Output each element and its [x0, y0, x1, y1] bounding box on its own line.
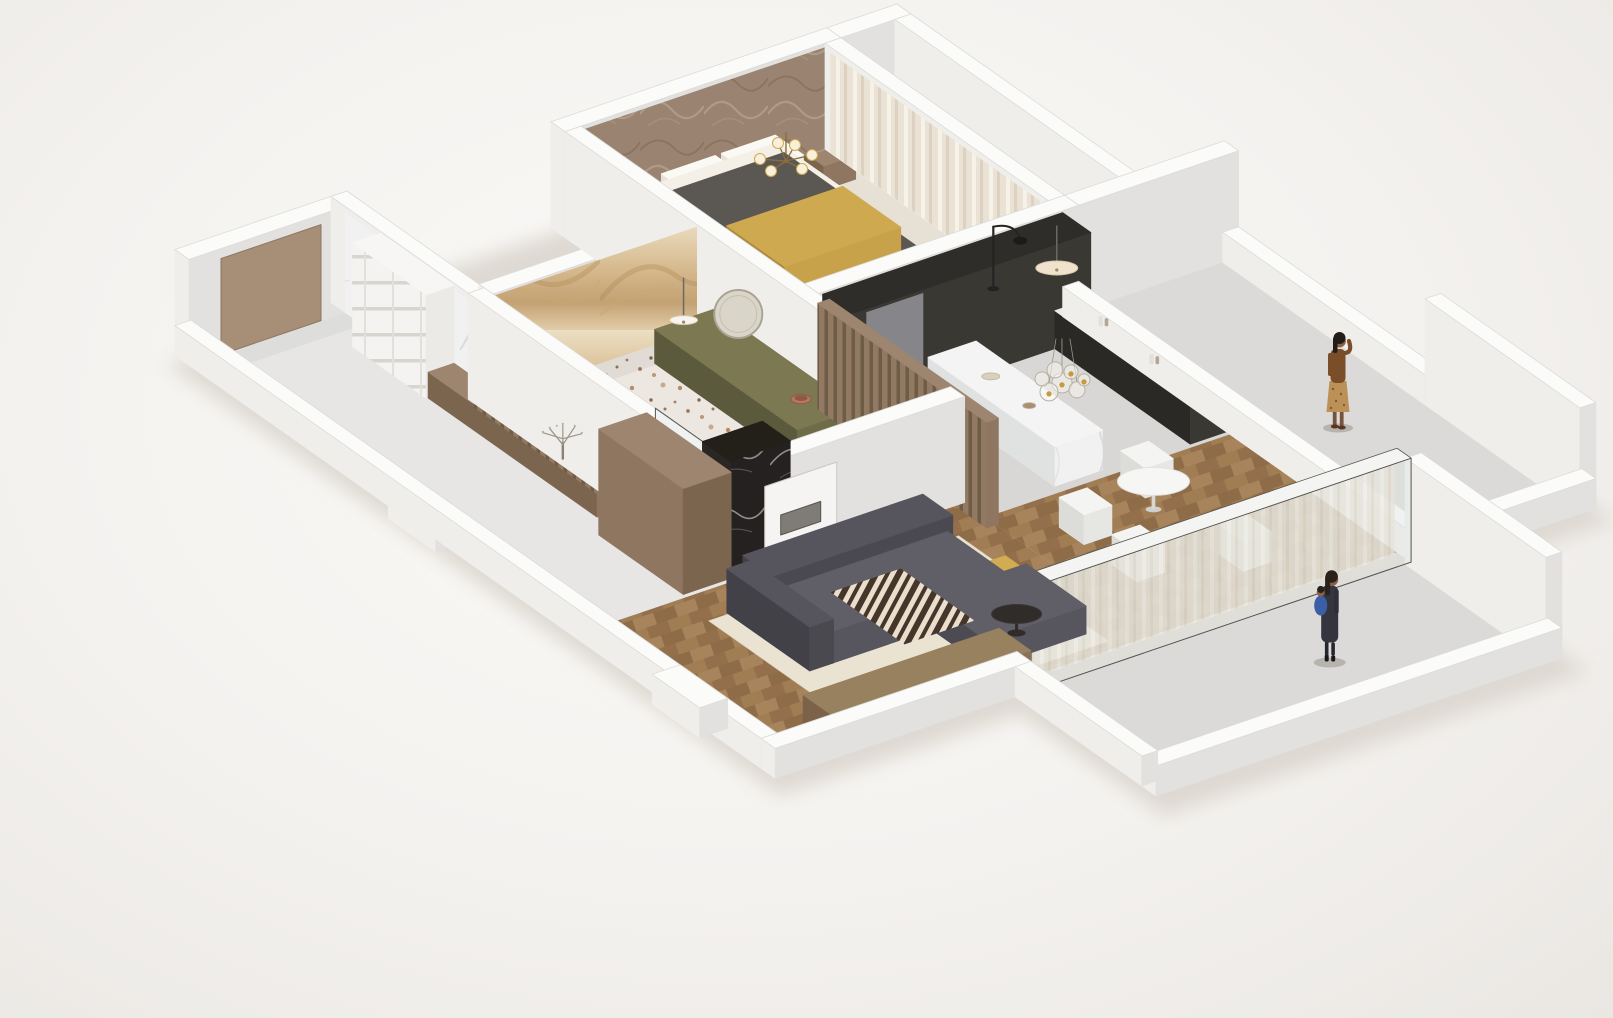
kitchen-island-bowl	[1023, 403, 1036, 409]
bath-copper-sink	[791, 395, 811, 404]
kitchen-island-plate	[982, 373, 1000, 380]
apartment-floorplan-3d-render	[0, 0, 1613, 1018]
bath-round-mirror	[714, 290, 762, 338]
floorplan-canvas	[0, 0, 1613, 1018]
